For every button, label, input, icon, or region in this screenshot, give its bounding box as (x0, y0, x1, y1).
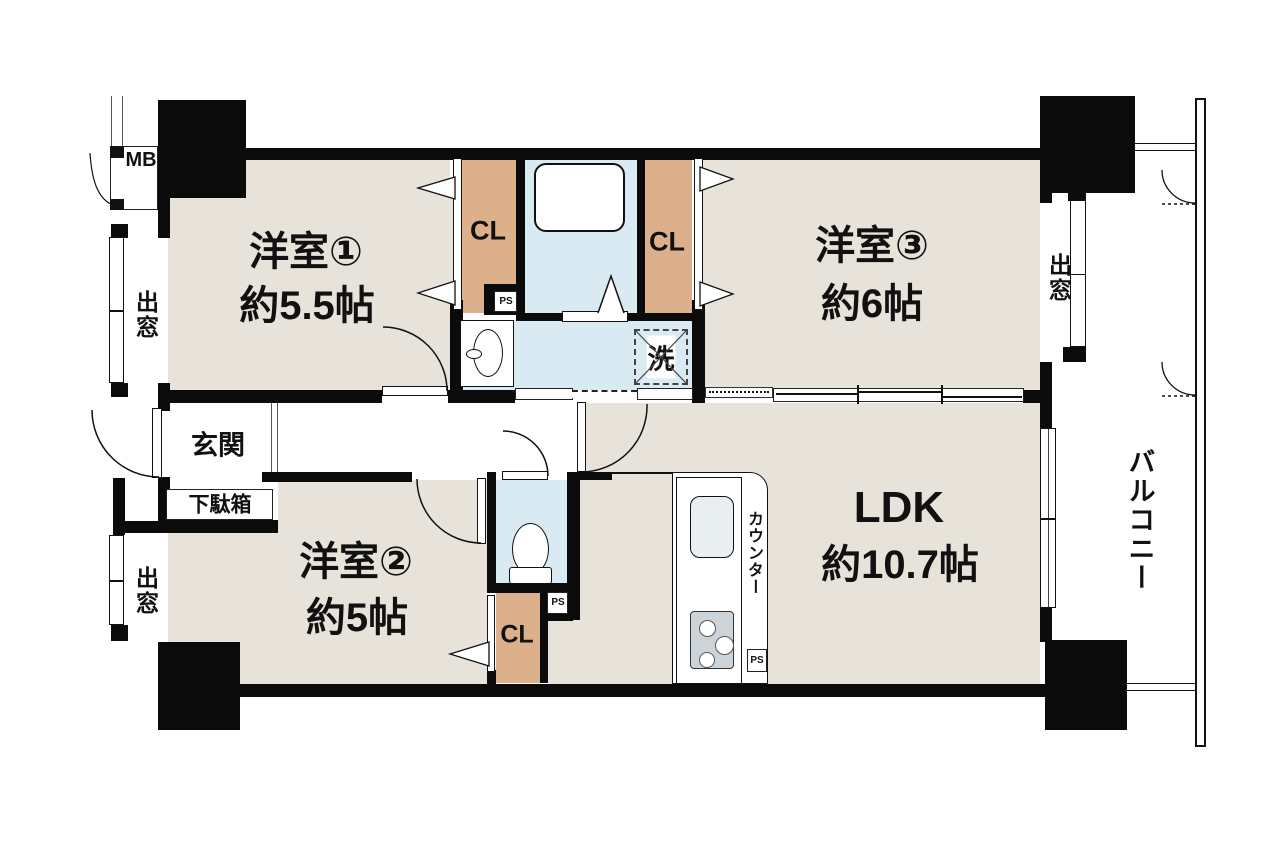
sliding-door-divider (941, 385, 943, 404)
ldk-floor (548, 620, 578, 684)
room1-name: 洋室① (249, 232, 363, 272)
sliding-door (637, 388, 693, 400)
ldk-door-leaf (577, 402, 586, 472)
kitchen-stove (690, 611, 734, 669)
wall-right (1040, 607, 1052, 642)
bay3-tick-bottom (1063, 347, 1086, 362)
corridor-edge-line (111, 96, 123, 148)
room3-name: 洋室③ (815, 226, 929, 266)
toilet-door-leaf (502, 471, 548, 480)
meter-box-tick (110, 146, 124, 158)
wall-shoebox-bottom (158, 520, 278, 533)
room2-door-leaf (477, 478, 486, 544)
bathtub (534, 163, 625, 232)
bay2-tick-bottom (111, 625, 128, 641)
ldk-size: 約10.7帖 (821, 545, 979, 585)
floor-plan: 洗 洋室① (0, 0, 1280, 850)
meter-box-label: MB (125, 150, 156, 170)
balcony-label: バルコニー (1126, 448, 1153, 593)
room1-size: 約5.5帖 (239, 286, 375, 326)
meter-box-tick (110, 199, 124, 210)
bay1-tick-top (111, 224, 128, 238)
bay-window-room3 (1070, 200, 1086, 347)
wall-toilet-right (567, 472, 580, 620)
wall-stub (567, 472, 612, 480)
laundry-label: 洗 (647, 336, 676, 379)
pipe-space-label: PS (499, 297, 512, 307)
wall-toilet-left (487, 472, 496, 593)
toilet-tank (509, 567, 552, 584)
wall-room1-bottom (158, 390, 382, 403)
wall-bath-bottom (516, 313, 562, 321)
column-bottom-right (1045, 640, 1127, 730)
room1-door-leaf (382, 386, 448, 396)
balcony-railing (1195, 98, 1206, 747)
room3-open-passage (705, 387, 773, 398)
washroom-sliding-door (515, 388, 573, 400)
sliding-door-rail (859, 391, 941, 393)
balcony-partition-door-arc (1162, 362, 1195, 395)
closet2-door (487, 595, 495, 672)
room1-floor (246, 160, 450, 198)
front-door-leaf (152, 408, 162, 478)
bay-window-room1 (109, 237, 124, 383)
sliding-door-divider (857, 385, 859, 404)
sliding-door-rail (776, 393, 858, 395)
bathroom-threshold (562, 311, 628, 322)
washbasin-faucet (466, 349, 482, 359)
counter-edge-line (610, 472, 674, 474)
front-door-swing-arc (92, 410, 159, 477)
closet3-door (694, 158, 703, 310)
room2-name: 洋室② (299, 542, 413, 582)
bay-window-room2 (109, 535, 124, 625)
balcony-partition-door-arc (1162, 170, 1195, 203)
wall-corridor-bottom (262, 472, 412, 482)
column-bottom-left (158, 642, 240, 730)
pipe-space-label: PS (551, 598, 564, 608)
closet3-label: CL (649, 229, 685, 256)
entrance-label: 玄関 (191, 433, 245, 460)
room3-floor (703, 160, 1040, 390)
closet2-label: CL (500, 623, 533, 648)
column-top-right (1040, 96, 1135, 193)
room3-size: 約6帖 (821, 284, 923, 324)
ldk-balcony-window (1040, 428, 1056, 608)
balcony-partition-top (1135, 143, 1195, 151)
wall-band (1023, 390, 1052, 403)
pipe-space-label: PS (750, 656, 763, 666)
balcony-partition-bottom (1127, 683, 1195, 691)
sliding-door-rail (943, 396, 1022, 398)
entrance-step-line (271, 403, 278, 472)
kitchen-sink (690, 496, 734, 558)
wall-closet2-stub (487, 670, 496, 684)
wall-right (1040, 193, 1052, 203)
ldk-name: LDK (854, 486, 944, 530)
wall-bottom (240, 684, 1045, 697)
wall-bath-right (637, 155, 645, 313)
room2-size: 約5帖 (306, 598, 408, 638)
shoe-cabinet-label: 下駄箱 (189, 495, 252, 516)
bay1-tick-bottom (111, 383, 128, 397)
bay-window-label: 出窓 (134, 290, 157, 340)
bay-window-label: 出窓 (1047, 253, 1070, 303)
wall-bath-bottom (627, 313, 705, 321)
column-top-left (158, 100, 246, 198)
closet1-door (453, 158, 462, 310)
wall-left (158, 198, 170, 238)
wall-ps2-bottom (547, 613, 573, 621)
open-passage (572, 390, 637, 398)
bay-window-label: 出窓 (134, 566, 157, 616)
wall-room1-bottom (448, 390, 515, 403)
washing-machine-space: 洗 (634, 329, 688, 385)
closet1-label: CL (470, 218, 506, 245)
kitchen-counter-label: カウンター (745, 511, 761, 596)
